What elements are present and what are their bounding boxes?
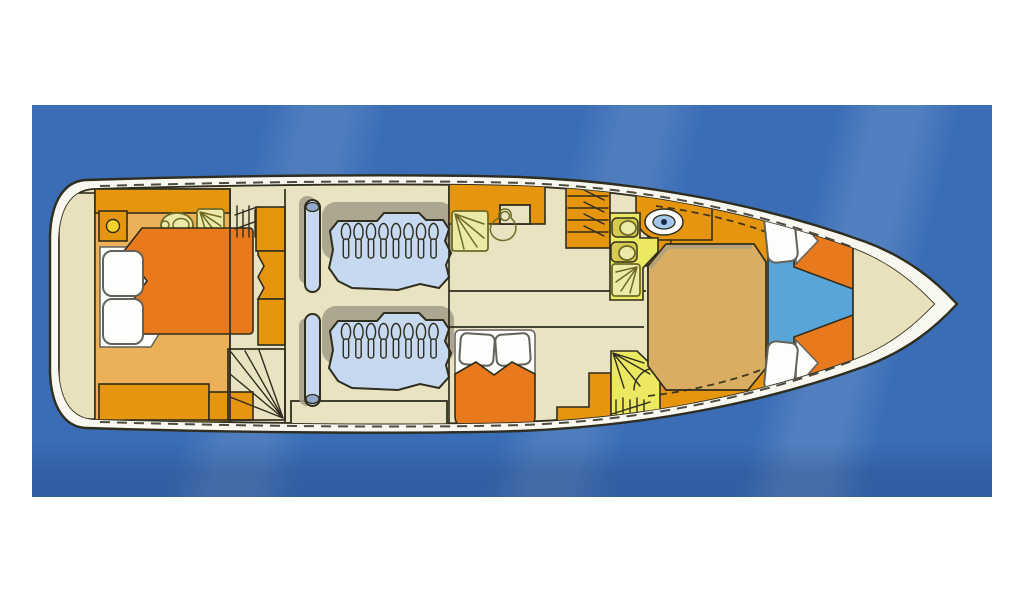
engine-port-exhaust-pipe xyxy=(305,200,320,292)
engine-stbd-exhaust-pipe xyxy=(305,314,320,406)
page: { "scene": { "type": "yacht-lower-deck-f… xyxy=(0,0,1024,600)
corridor-cabinet-mid xyxy=(258,251,285,299)
mid-bed-pillow-right xyxy=(495,333,531,366)
engine-port-pipe-cap xyxy=(306,203,319,212)
deck-plan-svg xyxy=(0,0,1024,600)
master-pillow-port xyxy=(103,251,143,296)
sink-drain-icon xyxy=(661,219,667,225)
engine-stbd-pipe-cap xyxy=(306,395,319,404)
corridor-cabinet-top xyxy=(256,207,285,251)
toilet-fwd-1-bowl-icon xyxy=(620,221,636,235)
master-pillow-starboard xyxy=(103,299,143,344)
lamp-icon xyxy=(107,220,120,233)
corridor-cabinet-low xyxy=(258,299,285,345)
dinette-seating xyxy=(648,244,766,390)
master-settee xyxy=(99,384,209,420)
master-settee-end xyxy=(209,392,253,420)
mid-bed-pillow-left xyxy=(459,333,495,366)
toilet-fwd-2-bowl-icon xyxy=(619,246,635,260)
aft-swim-platform xyxy=(59,193,95,419)
